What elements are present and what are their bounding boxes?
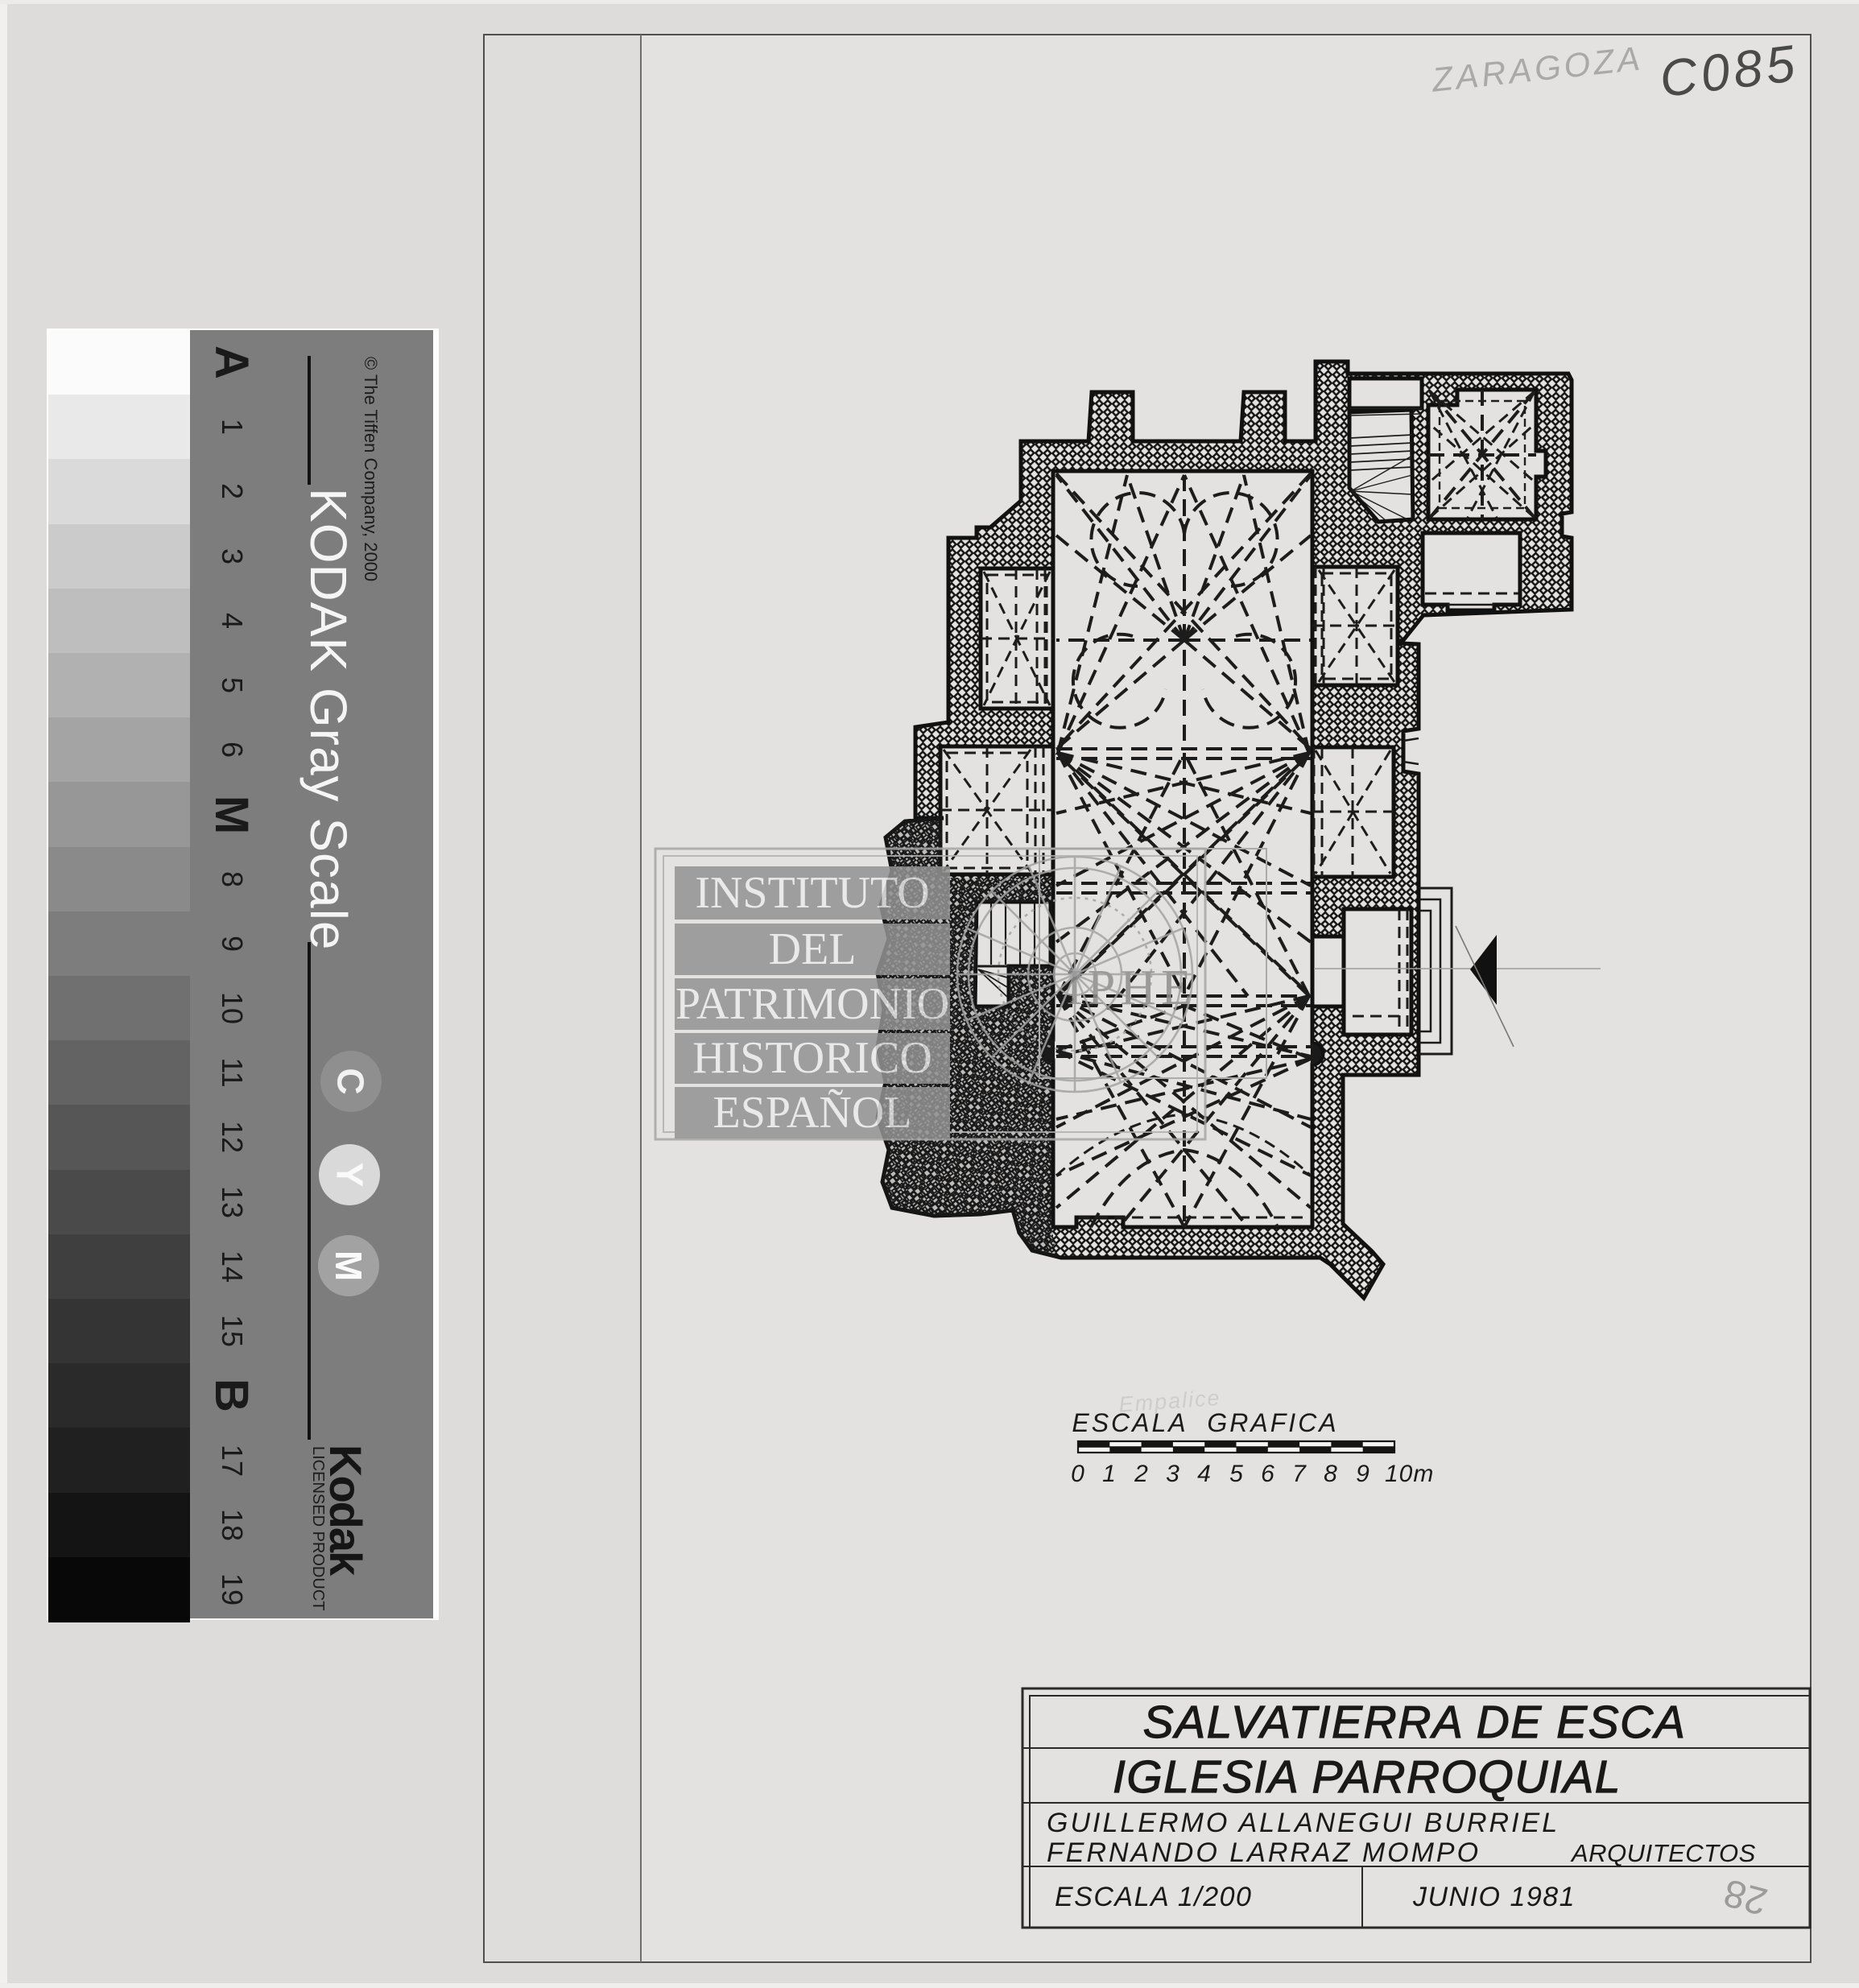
svg-text:10m: 10m <box>1385 1461 1434 1487</box>
svg-text:6: 6 <box>1261 1461 1275 1487</box>
svg-text:FERNANDO LARRAZ MOMPO: FERNANDO LARRAZ MOMPO <box>1047 1837 1481 1868</box>
svg-text:3: 3 <box>1166 1461 1180 1487</box>
svg-text:4: 4 <box>1197 1461 1212 1487</box>
svg-text:5: 5 <box>1229 1461 1244 1487</box>
svg-text:PATRIMONIO: PATRIMONIO <box>675 979 949 1029</box>
svg-text:JUNIO 1981: JUNIO 1981 <box>1412 1882 1576 1912</box>
svg-text:2: 2 <box>1134 1461 1149 1487</box>
svg-text:ESCALA 1/200: ESCALA 1/200 <box>1055 1882 1252 1912</box>
svg-text:INSTITUTO: INSTITUTO <box>695 868 929 918</box>
svg-text:ARQUITECTOS: ARQUITECTOS <box>1570 1839 1756 1867</box>
svg-text:0: 0 <box>1071 1461 1085 1487</box>
svg-text:7: 7 <box>1292 1461 1307 1487</box>
svg-text:ESPAÑOL: ESPAÑOL <box>713 1088 912 1138</box>
svg-text:DEL: DEL <box>769 924 857 974</box>
svg-text:HISTORICO: HISTORICO <box>692 1033 932 1083</box>
svg-text:ESCALA GRAFICA: ESCALA GRAFICA <box>1072 1408 1338 1437</box>
svg-text:9: 9 <box>1356 1461 1370 1487</box>
svg-text:GUILLERMO ALLANEGUI BURRIEL: GUILLERMO ALLANEGUI BURRIEL <box>1047 1808 1559 1838</box>
svg-text:8: 8 <box>1324 1461 1338 1487</box>
svg-text:1: 1 <box>1102 1461 1117 1487</box>
svg-text:IGLESIA PARROQUIAL: IGLESIA PARROQUIAL <box>1113 1751 1621 1803</box>
svg-text:SALVATIERRA DE ESCA: SALVATIERRA DE ESCA <box>1143 1697 1687 1748</box>
svg-text:IPHE: IPHE <box>1066 961 1196 1015</box>
